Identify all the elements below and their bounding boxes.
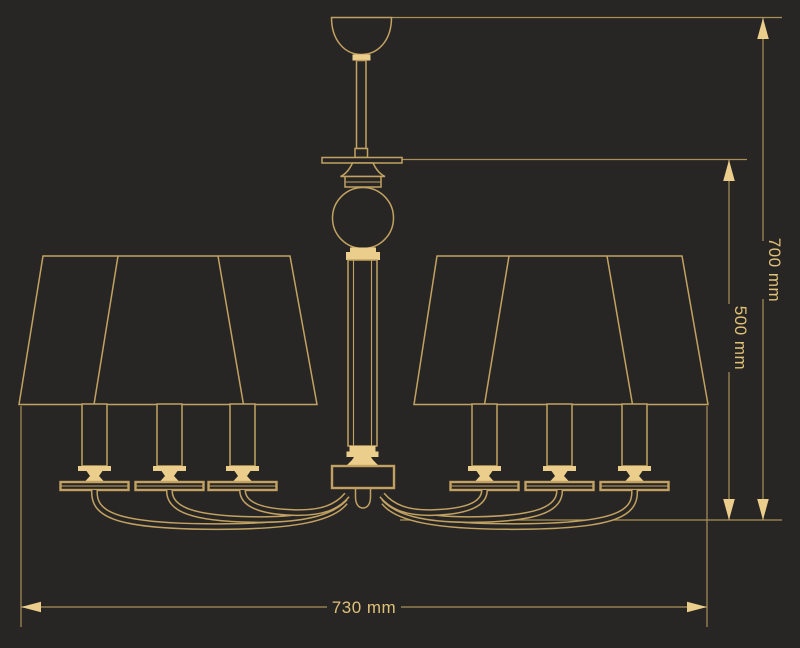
candle [61, 404, 129, 490]
drawing-canvas: 730 mm 700 mm 500 mm [0, 0, 800, 648]
chandelier-dimension-drawing: 730 mm 700 mm 500 mm [0, 0, 800, 648]
lower-collar-base [346, 252, 380, 260]
dimension-total-height: 700 mm [757, 18, 784, 520]
bottom-finial [356, 489, 371, 509]
hub-body [332, 466, 394, 488]
arrow-left [21, 602, 41, 612]
dimension-body-height: 500 mm [723, 160, 750, 520]
candle [209, 404, 277, 490]
trumpet-flare [341, 163, 386, 177]
width-dimension-label: 730 mm [332, 598, 396, 617]
body-height-dimension-label: 500 mm [731, 306, 750, 370]
ball-ornament [333, 188, 394, 249]
arrow-down [757, 499, 769, 520]
candle [451, 404, 519, 490]
candle [601, 404, 669, 490]
arrow-up [723, 160, 735, 181]
candle [136, 404, 204, 490]
total-height-dimension-label: 700 mm [765, 238, 784, 302]
rod-connector [355, 149, 368, 158]
arrow-right [687, 602, 707, 612]
candle [526, 404, 594, 490]
column-shaft [348, 260, 377, 446]
lower-collar-top [350, 248, 376, 253]
shade-outline [19, 256, 317, 405]
arrow-up [757, 18, 769, 39]
canopy-collar [353, 55, 371, 61]
ceiling-mount [332, 18, 392, 158]
capital-ring [350, 446, 376, 452]
dimension-width: 730 mm [21, 598, 707, 617]
hanging-rod [357, 61, 367, 149]
lampshade-left [19, 256, 317, 405]
lampshade-right [414, 256, 708, 405]
arrow-down [723, 499, 735, 520]
top-disc [322, 158, 402, 164]
canopy-bowl [332, 18, 392, 55]
capital-flare [347, 457, 379, 466]
shade-outline [414, 256, 708, 405]
central-column [322, 158, 402, 447]
capital-ring [347, 452, 379, 458]
